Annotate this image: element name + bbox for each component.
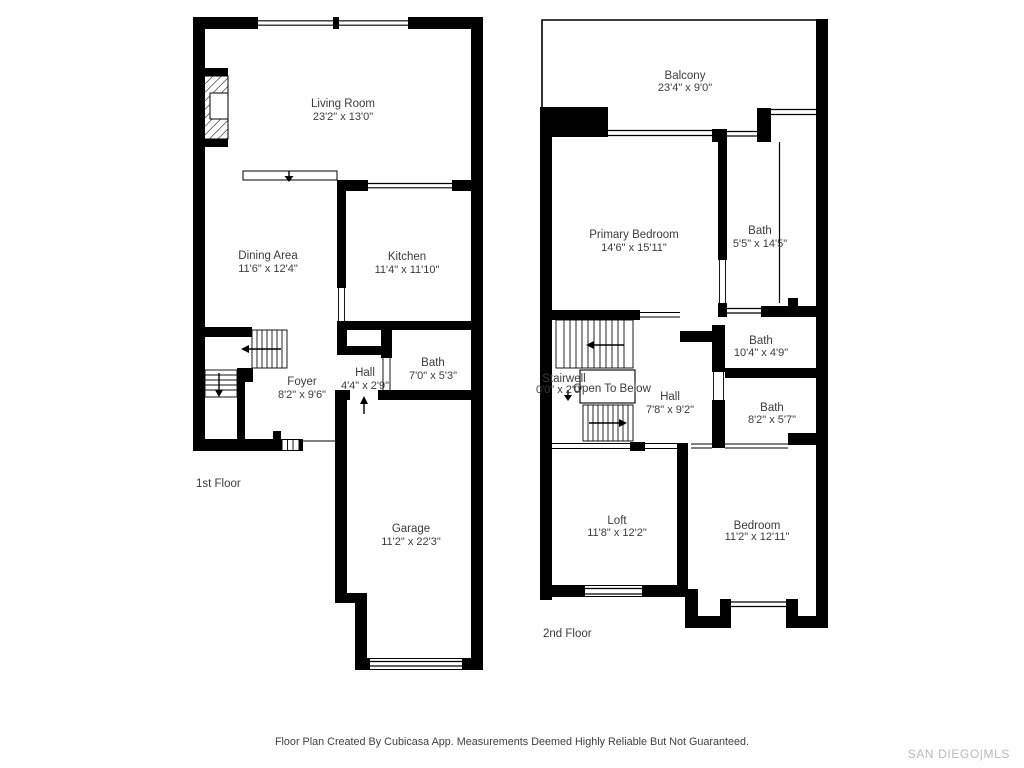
wall-segment <box>816 19 828 628</box>
wall-segment <box>718 142 727 260</box>
wall-segment <box>677 443 688 589</box>
wall-segment <box>720 599 731 628</box>
disclaimer-text: Floor Plan Created By Cubicasa App. Meas… <box>275 736 749 748</box>
wall-segment <box>193 17 205 451</box>
wall-segment <box>337 346 385 355</box>
wall-segment <box>193 327 252 337</box>
room-dims-bath-lower: 8'2" x 5'7" <box>748 414 796 426</box>
balcony-outline <box>542 20 827 110</box>
wall-segment <box>718 303 727 317</box>
room-dims-living-room: 23'2" x 13'0" <box>313 111 373 123</box>
room-dims-primary-bedroom: 14'6" x 15'11" <box>601 242 667 254</box>
room-label-garage: Garage <box>392 523 430 535</box>
room-dims-hall-second: 7'8" x 9'2" <box>646 404 694 416</box>
wall-segment <box>786 616 828 628</box>
wall-segment <box>712 129 727 142</box>
wall-segment <box>237 382 245 439</box>
room-label-bath-top: Bath <box>748 225 772 237</box>
watermark-text: SAN DIEGO|MLS <box>908 747 1010 761</box>
room-dims-hall-first: 4'4" x 2'9" <box>341 380 389 392</box>
room-dims-kitchen: 11'4" x 11'10" <box>375 264 440 276</box>
room-dims-dining-area: 11'6" x 12'4" <box>238 263 298 275</box>
wall-segment <box>757 108 771 142</box>
wall-segment <box>630 442 645 451</box>
room-label-foyer: Foyer <box>287 376 317 388</box>
room-label-bath-lower: Bath <box>760 402 784 414</box>
second-floor-label: 2nd Floor <box>543 628 592 640</box>
wall-segment <box>540 107 552 600</box>
wall-segment <box>337 180 346 288</box>
room-separator <box>243 171 337 182</box>
floor-plan-drawing: Living Room 23'2" x 13'0" Dining Area 11… <box>0 0 1024 768</box>
wall-segment <box>346 321 471 330</box>
room-label-hall-second: Hall <box>660 391 680 403</box>
wall-segment <box>193 17 483 29</box>
first-floor-stairs-icon <box>205 330 287 397</box>
room-label-living-room: Living Room <box>311 98 375 110</box>
room-dims-bath-middle: 10'4" x 4'9" <box>734 347 788 359</box>
entry-door-icon <box>282 440 299 451</box>
room-dims-bath-first: 7'0" x 5'3" <box>409 370 457 382</box>
first-floor-plan: Living Room 23'2" x 13'0" Dining Area 11… <box>193 17 483 670</box>
room-dims-garage: 11'2" x 22'3" <box>381 536 441 548</box>
wall-segment <box>788 433 816 445</box>
room-label-hall-first: Hall <box>355 367 375 379</box>
second-floor-plan: Balcony 23'4" x 9'0" Primary Bedroom 14'… <box>536 19 828 640</box>
room-label-open-to-below: Open To Below <box>573 383 651 395</box>
first-floor-label: 1st Floor <box>196 478 241 490</box>
window-icon <box>731 602 786 607</box>
wall-segment <box>273 431 281 440</box>
wall-segment <box>381 330 392 358</box>
wall-segment <box>335 390 347 598</box>
room-dims-foyer: 8'2" x 9'6" <box>278 389 326 401</box>
room-dims-loft: 11'8" x 12'2" <box>587 527 647 539</box>
wall-segment <box>552 310 640 320</box>
room-dims-balcony: 23'4" x 9'0" <box>658 82 712 94</box>
room-label-balcony: Balcony <box>665 70 706 82</box>
room-label-bath-first: Bath <box>421 357 445 369</box>
room-label-kitchen: Kitchen <box>388 251 426 263</box>
wall-segment <box>680 331 712 342</box>
sliding-door-icon <box>608 131 712 136</box>
wall-segment <box>237 368 253 382</box>
room-label-primary-bedroom: Primary Bedroom <box>589 229 678 241</box>
wall-segment <box>471 17 483 670</box>
room-label-loft: Loft <box>607 515 627 527</box>
door-arrow-icon <box>360 396 368 414</box>
wall-segment <box>712 325 725 372</box>
room-label-dining-area: Dining Area <box>238 250 298 262</box>
wall-segment <box>712 400 725 448</box>
wall-segment <box>725 368 816 378</box>
room-label-bath-middle: Bath <box>749 335 773 347</box>
wall-segment <box>788 298 798 308</box>
room-dims-bedroom: 11'2" x 12'11" <box>725 531 790 543</box>
window-icon <box>727 110 816 137</box>
room-dims-bath-top: 5'5" x 14'5" <box>733 238 787 250</box>
wall-segment <box>378 390 471 400</box>
